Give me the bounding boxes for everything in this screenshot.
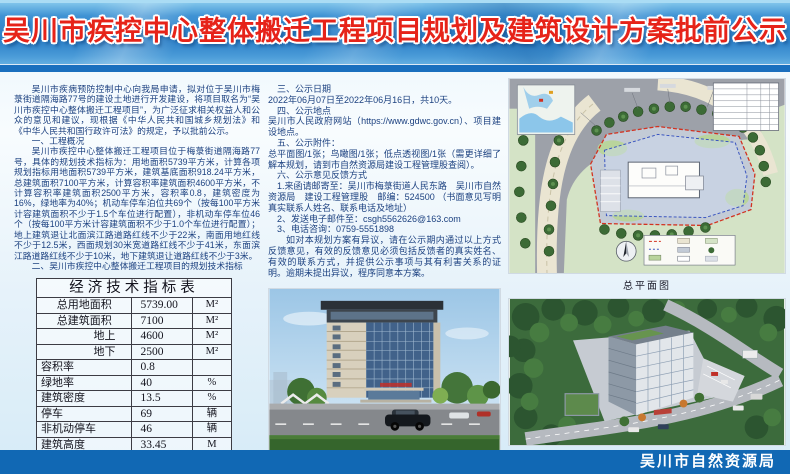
row-value: 2500 xyxy=(132,344,192,360)
row-label: 非机动停车 xyxy=(37,422,132,438)
row-label: 绿地率 xyxy=(37,375,132,391)
section3-heading: 三、公示日期 xyxy=(268,84,501,95)
aerial-rendering-image xyxy=(508,298,786,446)
row-label: 容积率 xyxy=(37,360,132,376)
site-plan-image xyxy=(508,78,786,274)
table-row: 非机动停车 46 辆 xyxy=(37,422,232,438)
table-row: 总用地面积 5739.00 M² xyxy=(37,298,232,314)
site-plan-caption: 总平面图 xyxy=(508,277,786,292)
row-label: 停车 xyxy=(37,406,132,422)
table-row: 停车 69 辆 xyxy=(37,406,232,422)
table-row: 建筑密度 13.5 % xyxy=(37,391,232,407)
issuing-agency: 吴川市自然资源局 xyxy=(640,453,776,470)
perspective-rendering-image xyxy=(268,288,501,456)
row-label: 地下 xyxy=(37,344,132,360)
section1-body: 吴川市疾控中心整体搬迁工程项目位于梅菉街道隔海路77号，具体的规划技术指标为：用… xyxy=(14,146,260,260)
row-value: 4600 xyxy=(132,329,192,345)
economic-indicator-table: 经济技术指标表 总用地面积 5739.00 M² 总建筑面积 7100 M² 地… xyxy=(36,278,232,453)
feedback-item-phone: 3、电话咨询：0759-5551898 xyxy=(268,224,501,235)
feedback-item-email: 2、发送电子邮件至：csgh5562626@163.com xyxy=(268,214,501,225)
row-value: 69 xyxy=(132,406,192,422)
row-unit: M² xyxy=(192,313,231,329)
row-value: 5739.00 xyxy=(132,298,192,314)
closing-paragraph: 如对本规划方案有异议，请在公示期内通过以上方式反馈意见，有效的反馈意见必须包括反… xyxy=(268,235,501,278)
row-value: 7100 xyxy=(132,313,192,329)
row-value: 0.8 xyxy=(132,360,192,376)
row-unit: % xyxy=(192,391,231,407)
public-notice-poster: 吴川市疾控中心整体搬迁工程项目规划及建筑设计方案批前公示 吴川市疾病预防控制中心… xyxy=(0,0,790,474)
row-label: 建筑密度 xyxy=(37,391,132,407)
poster-title: 吴川市疾控中心整体搬迁工程项目规划及建筑设计方案批前公示 xyxy=(0,0,790,64)
row-unit: % xyxy=(192,375,231,391)
row-unit: 辆 xyxy=(192,406,231,422)
section6-heading: 六、公示意见反馈方式 xyxy=(268,170,501,181)
row-unit: M² xyxy=(192,344,231,360)
banner-bottom-strip xyxy=(0,64,790,72)
row-value: 13.5 xyxy=(132,391,192,407)
table-row: 绿地率 40 % xyxy=(37,375,232,391)
table-title: 经济技术指标表 xyxy=(37,279,232,298)
section4-body: 吴川市人民政府网站（https://www.gdwc.gov.cn）、项目建设地… xyxy=(268,116,501,138)
row-value: 40 xyxy=(132,375,192,391)
row-unit xyxy=(192,360,231,376)
header-banner: 吴川市疾控中心整体搬迁工程项目规划及建筑设计方案批前公示 xyxy=(0,0,790,72)
section3-body: 2022年06月07日至2022年06月16日，共10天。 xyxy=(268,95,501,106)
row-unit: M² xyxy=(192,329,231,345)
intro-paragraph: 吴川市疾病预防控制中心向我局申请，拟对位于吴川市梅菉街道隔海路77号的建设土地进… xyxy=(14,84,260,136)
footer-bar: 吴川市自然资源局 xyxy=(0,450,790,474)
left-column: 吴川市疾病预防控制中心向我局申请，拟对位于吴川市梅菉街道隔海路77号的建设土地进… xyxy=(14,84,260,453)
table-row: 地上 4600 M² xyxy=(37,329,232,345)
middle-column: 三、公示日期 2022年06月07日至2022年06月16日，共10天。 四、公… xyxy=(268,84,501,470)
table-row: 总建筑面积 7100 M² xyxy=(37,313,232,329)
table-row: 容积率 0.8 xyxy=(37,360,232,376)
right-column: 总平面图 xyxy=(508,78,786,464)
row-label: 总用地面积 xyxy=(37,298,132,314)
section2-heading: 二、吴川市疾控中心整体搬迁工程项目的规划技术指标 xyxy=(14,261,260,271)
row-value: 46 xyxy=(132,422,192,438)
feedback-item-mail: 1.来函请邮寄至：吴川市梅菉街道人民东路 吴川市自然资源局 建设工程管理股 邮编… xyxy=(268,181,501,213)
section4-heading: 四、公示地点 xyxy=(268,106,501,117)
row-label: 地上 xyxy=(37,329,132,345)
row-unit: M² xyxy=(192,298,231,314)
row-label: 总建筑面积 xyxy=(37,313,132,329)
row-unit: 辆 xyxy=(192,422,231,438)
perspective-figure: 低点透视图 xyxy=(268,288,501,470)
section1-heading: 一、工程概况 xyxy=(14,136,260,146)
table-row: 地下 2500 M² xyxy=(37,344,232,360)
section5-body: 总平面图/1张；鸟瞰图/1张；低点透视图/1张（需更详细了解本规划，请到市自然资… xyxy=(268,149,501,171)
section5-heading: 五、公示附件： xyxy=(268,138,501,149)
content-area: 吴川市疾病预防控制中心向我局申请，拟对位于吴川市梅菉街道隔海路77号的建设土地进… xyxy=(0,72,790,450)
